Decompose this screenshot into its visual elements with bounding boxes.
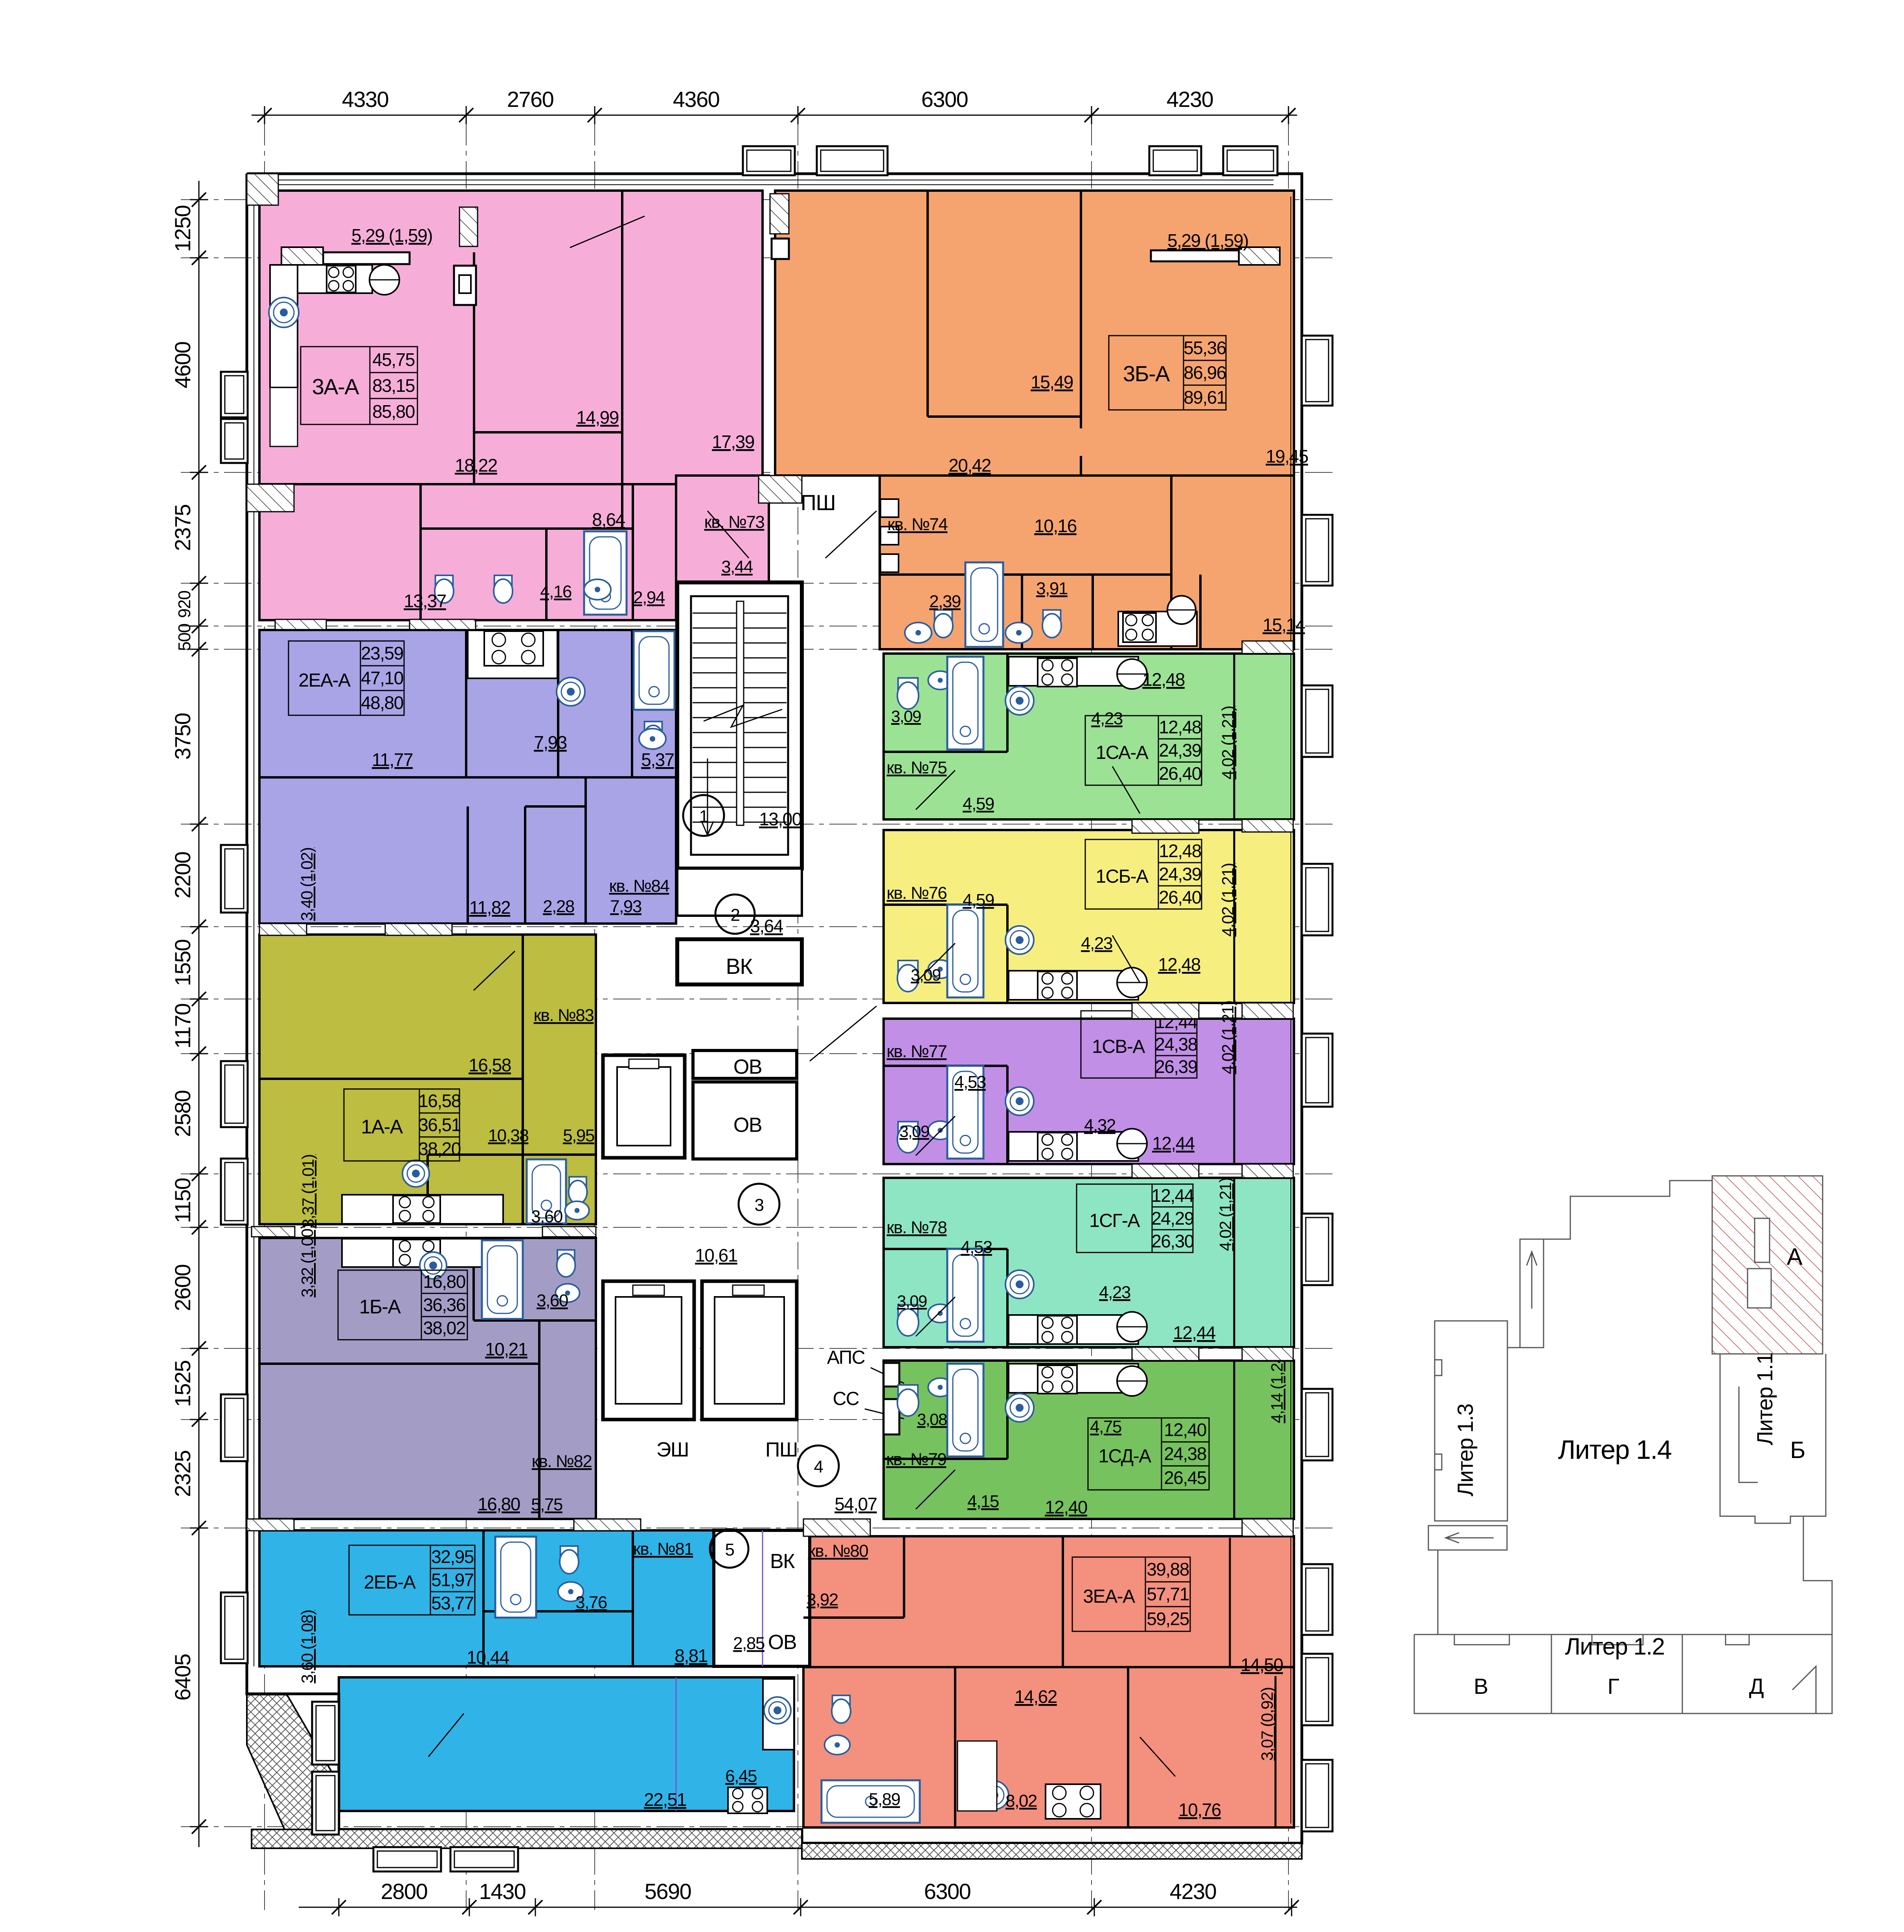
svg-text:4,02 (1,21): 4,02 (1,21) [1218,1001,1237,1074]
svg-text:3,09: 3,09 [911,966,941,984]
svg-text:4360: 4360 [673,87,720,112]
svg-text:2800: 2800 [381,1879,428,1904]
svg-text:1550: 1550 [170,940,195,986]
svg-text:12,48: 12,48 [1159,841,1201,861]
svg-text:11,82: 11,82 [469,897,510,918]
svg-text:3,08: 3,08 [917,1410,947,1429]
svg-text:48,80: 48,80 [361,692,403,713]
svg-text:3,60: 3,60 [531,1207,562,1226]
svg-text:16,58: 16,58 [418,1091,461,1111]
svg-text:86,96: 86,96 [1184,362,1226,383]
svg-text:8,81: 8,81 [674,1646,708,1666]
svg-text:16,80: 16,80 [423,1271,465,1292]
svg-text:3,40 (1,02): 3,40 (1,02) [298,848,316,921]
svg-text:4,59: 4,59 [963,794,994,814]
svg-text:1525: 1525 [170,1361,195,1407]
svg-text:57,71: 57,71 [1147,1584,1189,1604]
svg-text:4,23: 4,23 [1091,709,1123,728]
svg-text:кв. №76: кв. №76 [887,883,947,903]
svg-text:13,37: 13,37 [404,591,446,611]
svg-text:Литер 1.2: Литер 1.2 [1565,1633,1664,1660]
svg-text:2,94: 2,94 [633,588,665,607]
svg-text:5,29 (1,59): 5,29 (1,59) [351,225,432,246]
svg-text:12,40: 12,40 [1045,1497,1087,1517]
svg-text:4,53: 4,53 [961,1238,992,1257]
svg-text:23,59: 23,59 [361,643,403,663]
svg-text:8,64: 8,64 [592,509,625,530]
svg-text:3,91: 3,91 [1036,579,1068,598]
svg-text:2,28: 2,28 [543,897,574,916]
svg-text:89,61: 89,61 [1184,387,1226,408]
svg-text:10,61: 10,61 [695,1245,737,1265]
svg-text:5,29 (1,59): 5,29 (1,59) [1167,230,1248,251]
svg-text:1СГ-А: 1СГ-А [1089,1210,1140,1231]
svg-text:26,40: 26,40 [1159,887,1201,907]
svg-text:кв. №73: кв. №73 [704,512,765,532]
svg-text:3,76: 3,76 [575,1593,607,1612]
svg-text:4,53: 4,53 [954,1073,986,1092]
svg-text:3,37 (1,01): 3,37 (1,01) [299,1155,317,1228]
svg-text:39,88: 39,88 [1147,1559,1189,1579]
svg-text:17,39: 17,39 [712,432,754,452]
svg-text:47,10: 47,10 [361,668,403,688]
svg-text:18,22: 18,22 [455,455,497,476]
svg-text:920: 920 [175,591,194,618]
svg-text:38,02: 38,02 [423,1318,465,1338]
svg-text:2: 2 [731,905,740,925]
svg-text:7,93: 7,93 [534,732,567,753]
svg-text:24,39: 24,39 [1159,864,1201,884]
svg-text:А: А [1787,1243,1803,1270]
svg-text:ОВ: ОВ [733,1114,762,1137]
svg-text:3,09: 3,09 [899,1122,929,1140]
svg-text:2ЕБ-А: 2ЕБ-А [364,1572,416,1593]
svg-text:ЭШ: ЭШ [656,1438,689,1461]
svg-text:кв. №80: кв. №80 [808,1541,868,1561]
svg-text:ПШ: ПШ [801,490,836,515]
svg-text:26,39: 26,39 [1155,1056,1197,1077]
svg-text:2600: 2600 [170,1265,195,1311]
svg-text:13,00: 13,00 [759,809,801,829]
svg-text:4,02 (1,21): 4,02 (1,21) [1218,706,1237,780]
svg-text:кв. №74: кв. №74 [888,515,948,534]
svg-text:2200: 2200 [170,852,195,899]
svg-text:АПС: АПС [827,1347,865,1368]
svg-text:51,97: 51,97 [431,1570,474,1590]
svg-text:1А-А: 1А-А [361,1116,403,1138]
svg-text:3,60: 3,60 [537,1291,568,1310]
svg-text:1: 1 [699,807,708,826]
svg-text:1430: 1430 [479,1879,526,1904]
svg-text:10,44: 10,44 [467,1647,509,1668]
svg-text:16,58: 16,58 [469,1055,511,1075]
svg-text:2580: 2580 [170,1091,195,1137]
svg-text:12,40: 12,40 [1164,1420,1206,1440]
svg-text:ВК: ВК [726,954,753,979]
svg-text:16,80: 16,80 [478,1494,520,1514]
svg-text:19,45: 19,45 [1266,446,1308,466]
svg-text:3,09: 3,09 [891,707,921,725]
svg-text:26,30: 26,30 [1151,1231,1194,1251]
svg-text:5,37: 5,37 [641,749,674,770]
svg-text:4,23: 4,23 [1081,934,1112,953]
svg-text:Г: Г [1608,1674,1619,1699]
svg-text:ОВ: ОВ [733,1056,762,1078]
svg-text:55,36: 55,36 [1184,338,1226,358]
svg-text:3ЕА-А: 3ЕА-А [1083,1586,1135,1607]
svg-text:24,29: 24,29 [1151,1208,1194,1229]
svg-text:14,62: 14,62 [1014,1686,1057,1707]
svg-text:14,99: 14,99 [576,407,619,428]
svg-text:20,42: 20,42 [948,455,991,476]
svg-text:3,09: 3,09 [897,1292,927,1310]
svg-text:Д: Д [1749,1674,1764,1699]
svg-text:12,44: 12,44 [1173,1322,1216,1343]
svg-text:4,32: 4,32 [1084,1116,1116,1135]
svg-text:ПШ: ПШ [765,1438,798,1461]
svg-text:45,75: 45,75 [372,349,415,370]
svg-text:4600: 4600 [170,342,195,389]
svg-text:26,45: 26,45 [1164,1467,1206,1488]
svg-text:кв. №82: кв. №82 [532,1452,592,1471]
svg-text:5690: 5690 [645,1879,691,1904]
svg-text:4230: 4230 [1170,1879,1217,1904]
svg-text:4,75: 4,75 [1090,1417,1121,1436]
svg-text:14,50: 14,50 [1241,1655,1283,1675]
svg-text:1СВ-А: 1СВ-А [1092,1036,1145,1057]
svg-text:3,07 (0,92): 3,07 (0,92) [1258,1688,1276,1761]
svg-text:1СД-А: 1СД-А [1098,1446,1151,1467]
svg-text:5: 5 [725,1540,734,1559]
svg-text:кв. №78: кв. №78 [887,1218,947,1237]
svg-text:кв. №84: кв. №84 [609,876,670,896]
svg-text:12,44: 12,44 [1151,1185,1194,1206]
svg-text:3,60 (1,08): 3,60 (1,08) [298,1610,316,1684]
svg-text:1СА-А: 1СА-А [1096,742,1149,763]
svg-text:5,75: 5,75 [531,1495,562,1514]
svg-text:3Б-А: 3Б-А [1123,361,1170,386]
svg-text:В: В [1474,1674,1488,1699]
svg-text:12,44: 12,44 [1152,1133,1195,1153]
svg-text:кв. №81: кв. №81 [633,1539,693,1559]
svg-text:12,48: 12,48 [1142,669,1185,690]
svg-text:ВК: ВК [770,1550,795,1573]
svg-text:Литер 1.4: Литер 1.4 [1558,1435,1672,1465]
svg-text:38,20: 38,20 [418,1139,461,1159]
svg-text:32,95: 32,95 [431,1546,474,1567]
svg-text:1150: 1150 [170,1178,195,1223]
svg-text:11,77: 11,77 [372,749,413,770]
svg-text:4,59: 4,59 [963,891,994,910]
svg-text:4330: 4330 [342,87,389,112]
svg-text:59,25: 59,25 [1147,1609,1189,1629]
svg-text:36,36: 36,36 [423,1295,465,1315]
svg-text:53,77: 53,77 [431,1593,474,1613]
svg-text:кв. №75: кв. №75 [887,758,947,777]
svg-text:3А-А: 3А-А [312,374,360,399]
svg-text:2375: 2375 [170,505,195,551]
svg-text:кв. №83: кв. №83 [534,1006,594,1025]
svg-text:5,95: 5,95 [563,1126,594,1145]
svg-text:6300: 6300 [924,1879,971,1904]
svg-text:Литер 1.3: Литер 1.3 [1453,1404,1478,1496]
svg-text:4,02 (1,21): 4,02 (1,21) [1216,1178,1235,1251]
svg-text:3,32 (1,00): 3,32 (1,00) [298,1224,316,1298]
svg-text:4,02 (1,21): 4,02 (1,21) [1218,863,1237,937]
svg-text:кв. №79: кв. №79 [886,1450,946,1469]
svg-text:8,02: 8,02 [1005,1791,1037,1811]
svg-text:24,38: 24,38 [1155,1034,1197,1054]
svg-text:Литер 1.1: Литер 1.1 [1752,1353,1777,1445]
svg-text:1СБ-А: 1СБ-А [1095,866,1149,887]
svg-text:15,14: 15,14 [1263,615,1305,635]
svg-text:10,21: 10,21 [485,1339,527,1359]
svg-text:4,23: 4,23 [1099,1283,1130,1302]
svg-text:3750: 3750 [170,713,195,760]
svg-text:2,85: 2,85 [733,1634,765,1653]
svg-text:7,93: 7,93 [610,897,641,916]
svg-text:СС: СС [833,1388,859,1409]
svg-text:1250: 1250 [170,206,195,252]
svg-text:6300: 6300 [921,87,968,112]
svg-text:Б: Б [1790,1437,1805,1463]
svg-text:24,39: 24,39 [1159,740,1201,760]
svg-text:кв. №77: кв. №77 [887,1042,947,1061]
svg-text:4,15: 4,15 [967,1492,999,1511]
svg-text:10,76: 10,76 [1178,1800,1221,1820]
svg-text:4,16: 4,16 [540,582,572,601]
svg-text:83,15: 83,15 [372,375,415,396]
svg-text:85,80: 85,80 [372,401,415,422]
svg-text:500: 500 [175,624,194,651]
svg-text:12,48: 12,48 [1159,717,1201,737]
svg-text:4: 4 [814,1457,823,1477]
svg-text:3,44: 3,44 [721,557,753,577]
svg-text:4230: 4230 [1167,87,1213,112]
svg-text:3,92: 3,92 [807,1590,838,1609]
svg-text:24,38: 24,38 [1164,1443,1206,1464]
svg-text:2325: 2325 [170,1451,195,1497]
svg-text:3: 3 [755,1196,764,1215]
svg-text:26,40: 26,40 [1159,763,1201,784]
svg-text:1170: 1170 [170,1004,195,1049]
svg-text:36,51: 36,51 [418,1115,461,1135]
svg-text:12,48: 12,48 [1158,954,1200,975]
svg-text:10,38: 10,38 [488,1126,529,1145]
svg-text:6405: 6405 [170,1654,195,1701]
svg-text:2ЕА-А: 2ЕА-А [298,670,351,691]
svg-text:5,89: 5,89 [869,1790,900,1809]
svg-text:15,49: 15,49 [1031,372,1073,392]
svg-text:ОВ: ОВ [768,1631,796,1654]
svg-text:2760: 2760 [507,87,554,112]
svg-text:2,39: 2,39 [929,592,961,611]
svg-text:10,16: 10,16 [1034,516,1077,536]
svg-text:6,45: 6,45 [725,1767,757,1786]
svg-text:22,51: 22,51 [644,1789,686,1810]
svg-text:1Б-А: 1Б-А [359,1296,401,1318]
svg-text:54,07: 54,07 [834,1494,877,1514]
